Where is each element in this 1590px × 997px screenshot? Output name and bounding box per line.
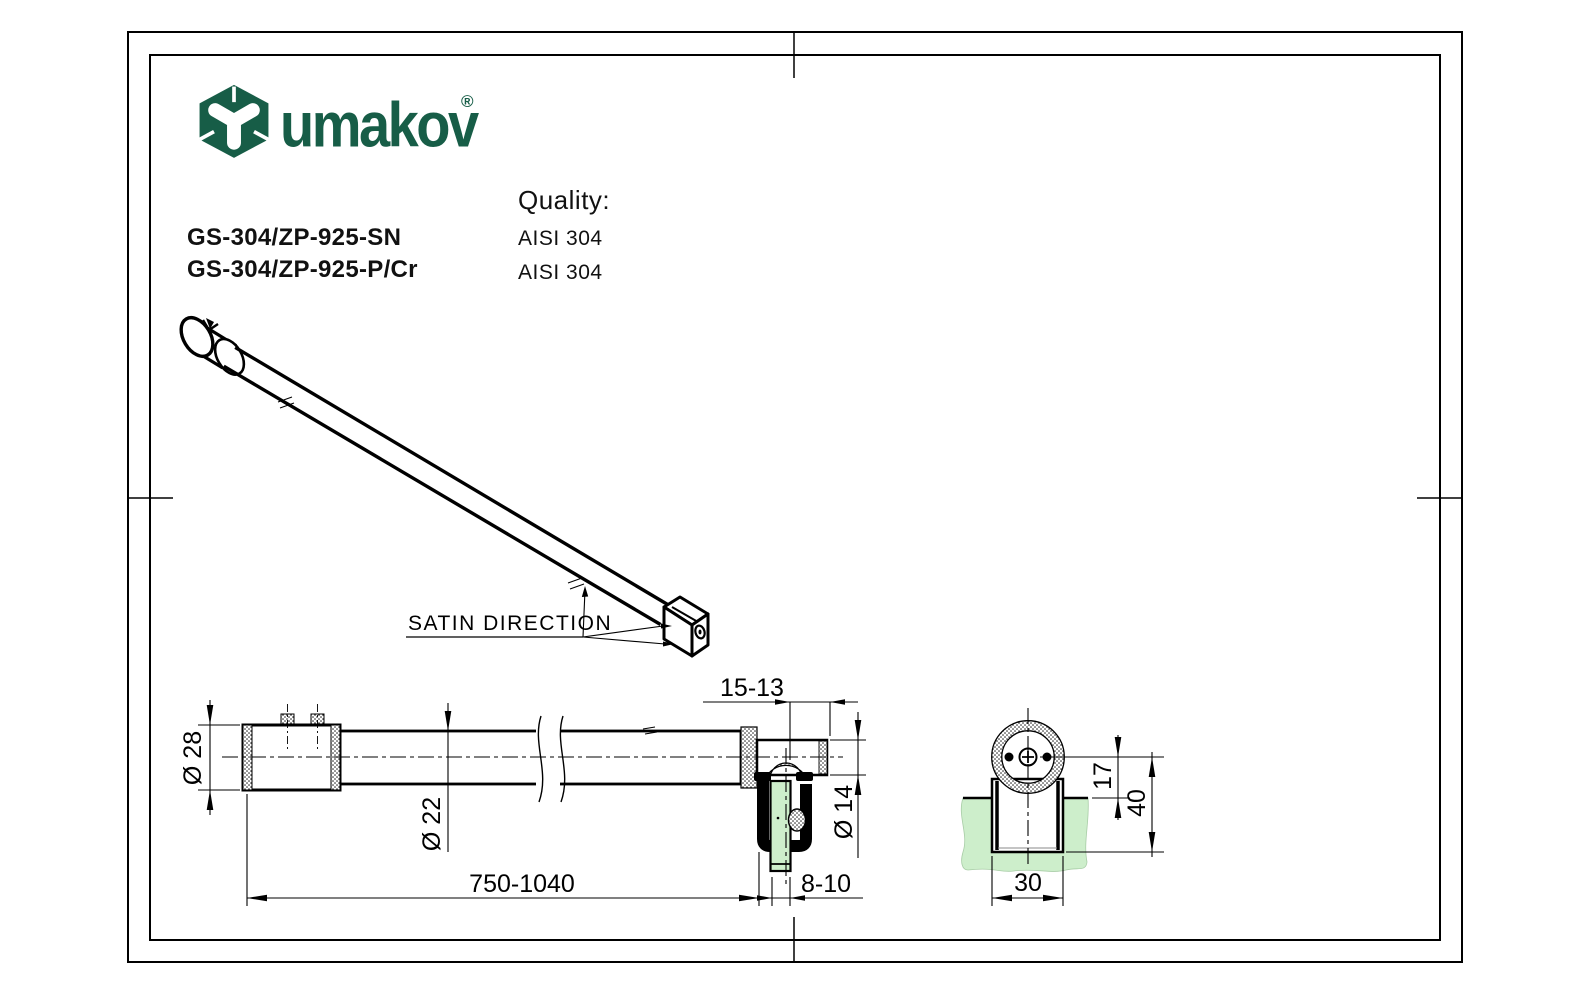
inner-border xyxy=(150,55,1440,940)
dim-label-glass-thickness: 8-10 xyxy=(801,870,851,898)
clamp-flange-left xyxy=(754,772,771,781)
dimension-arrowhead xyxy=(830,699,845,705)
dim-label-diameter-22: Ø 22 xyxy=(418,797,446,851)
iso-view: SATIN DIRECTION xyxy=(175,312,708,656)
brand-wordmark: umakov xyxy=(280,94,477,157)
dimension-arrowhead xyxy=(855,720,862,740)
iso-clamp-block xyxy=(664,597,708,656)
glass-center-mark xyxy=(777,817,780,820)
product-quality-2: AISI 304 xyxy=(518,261,603,285)
quality-heading: Quality: xyxy=(518,185,610,216)
product-code-1: GS-304/ZP-925-SN xyxy=(187,224,401,252)
dimension-arrowhead xyxy=(757,895,772,901)
registered-trademark: ® xyxy=(461,92,474,112)
dim-label-stud-adjust: 15-13 xyxy=(720,674,784,702)
dimension-arrowhead xyxy=(1149,832,1156,852)
section-view: 17 40 30 xyxy=(961,708,1164,906)
dimension-arrowhead xyxy=(1043,895,1063,902)
product-quality-1: AISI 304 xyxy=(518,227,603,251)
leader-arrowhead xyxy=(582,586,588,597)
clamp-set-screw xyxy=(789,809,806,831)
side-view: Ø 28 Ø 22 Ø 14 15-13 750-1040 xyxy=(179,674,866,906)
dim-label-center-offset: 17 xyxy=(1089,762,1117,790)
dimension-arrowhead xyxy=(739,895,759,902)
dim-label-clamp-width: 30 xyxy=(1014,869,1042,897)
extension-line xyxy=(830,740,866,775)
clamp-hole-left xyxy=(1005,753,1014,762)
dim-label-total-depth: 40 xyxy=(1123,789,1151,817)
product-code-2: GS-304/ZP-925-P/Cr xyxy=(187,256,418,284)
iso-clamp-hole-center xyxy=(699,630,702,635)
dimension-arrowhead xyxy=(1149,757,1156,777)
clamp-flange-right xyxy=(796,772,813,781)
satin-leader-3 xyxy=(583,637,665,644)
dim-label-length: 750-1040 xyxy=(469,870,575,898)
dimension-arrowhead xyxy=(247,895,267,902)
dim-label-diameter-14: Ø 14 xyxy=(830,785,858,839)
iso-end-cap xyxy=(175,312,220,362)
dimension-arrowhead xyxy=(1115,798,1122,818)
iso-tube-upper-line xyxy=(235,347,671,606)
iso-step-collar xyxy=(209,334,250,380)
glass-panel-edge xyxy=(771,781,791,871)
drawing-sheet: SATIN DIRECTION xyxy=(0,0,1590,997)
dimension-arrowhead xyxy=(1115,737,1122,757)
dim-label-diameter-28: Ø 28 xyxy=(179,731,207,785)
logo-hexagon-icon xyxy=(193,84,275,158)
dimension-arrowhead xyxy=(207,790,214,810)
dimension-arrowhead xyxy=(992,895,1012,902)
dimension-arrowhead xyxy=(445,711,452,731)
satin-direction-label: SATIN DIRECTION xyxy=(408,612,612,635)
dimension-arrowhead xyxy=(207,705,214,725)
